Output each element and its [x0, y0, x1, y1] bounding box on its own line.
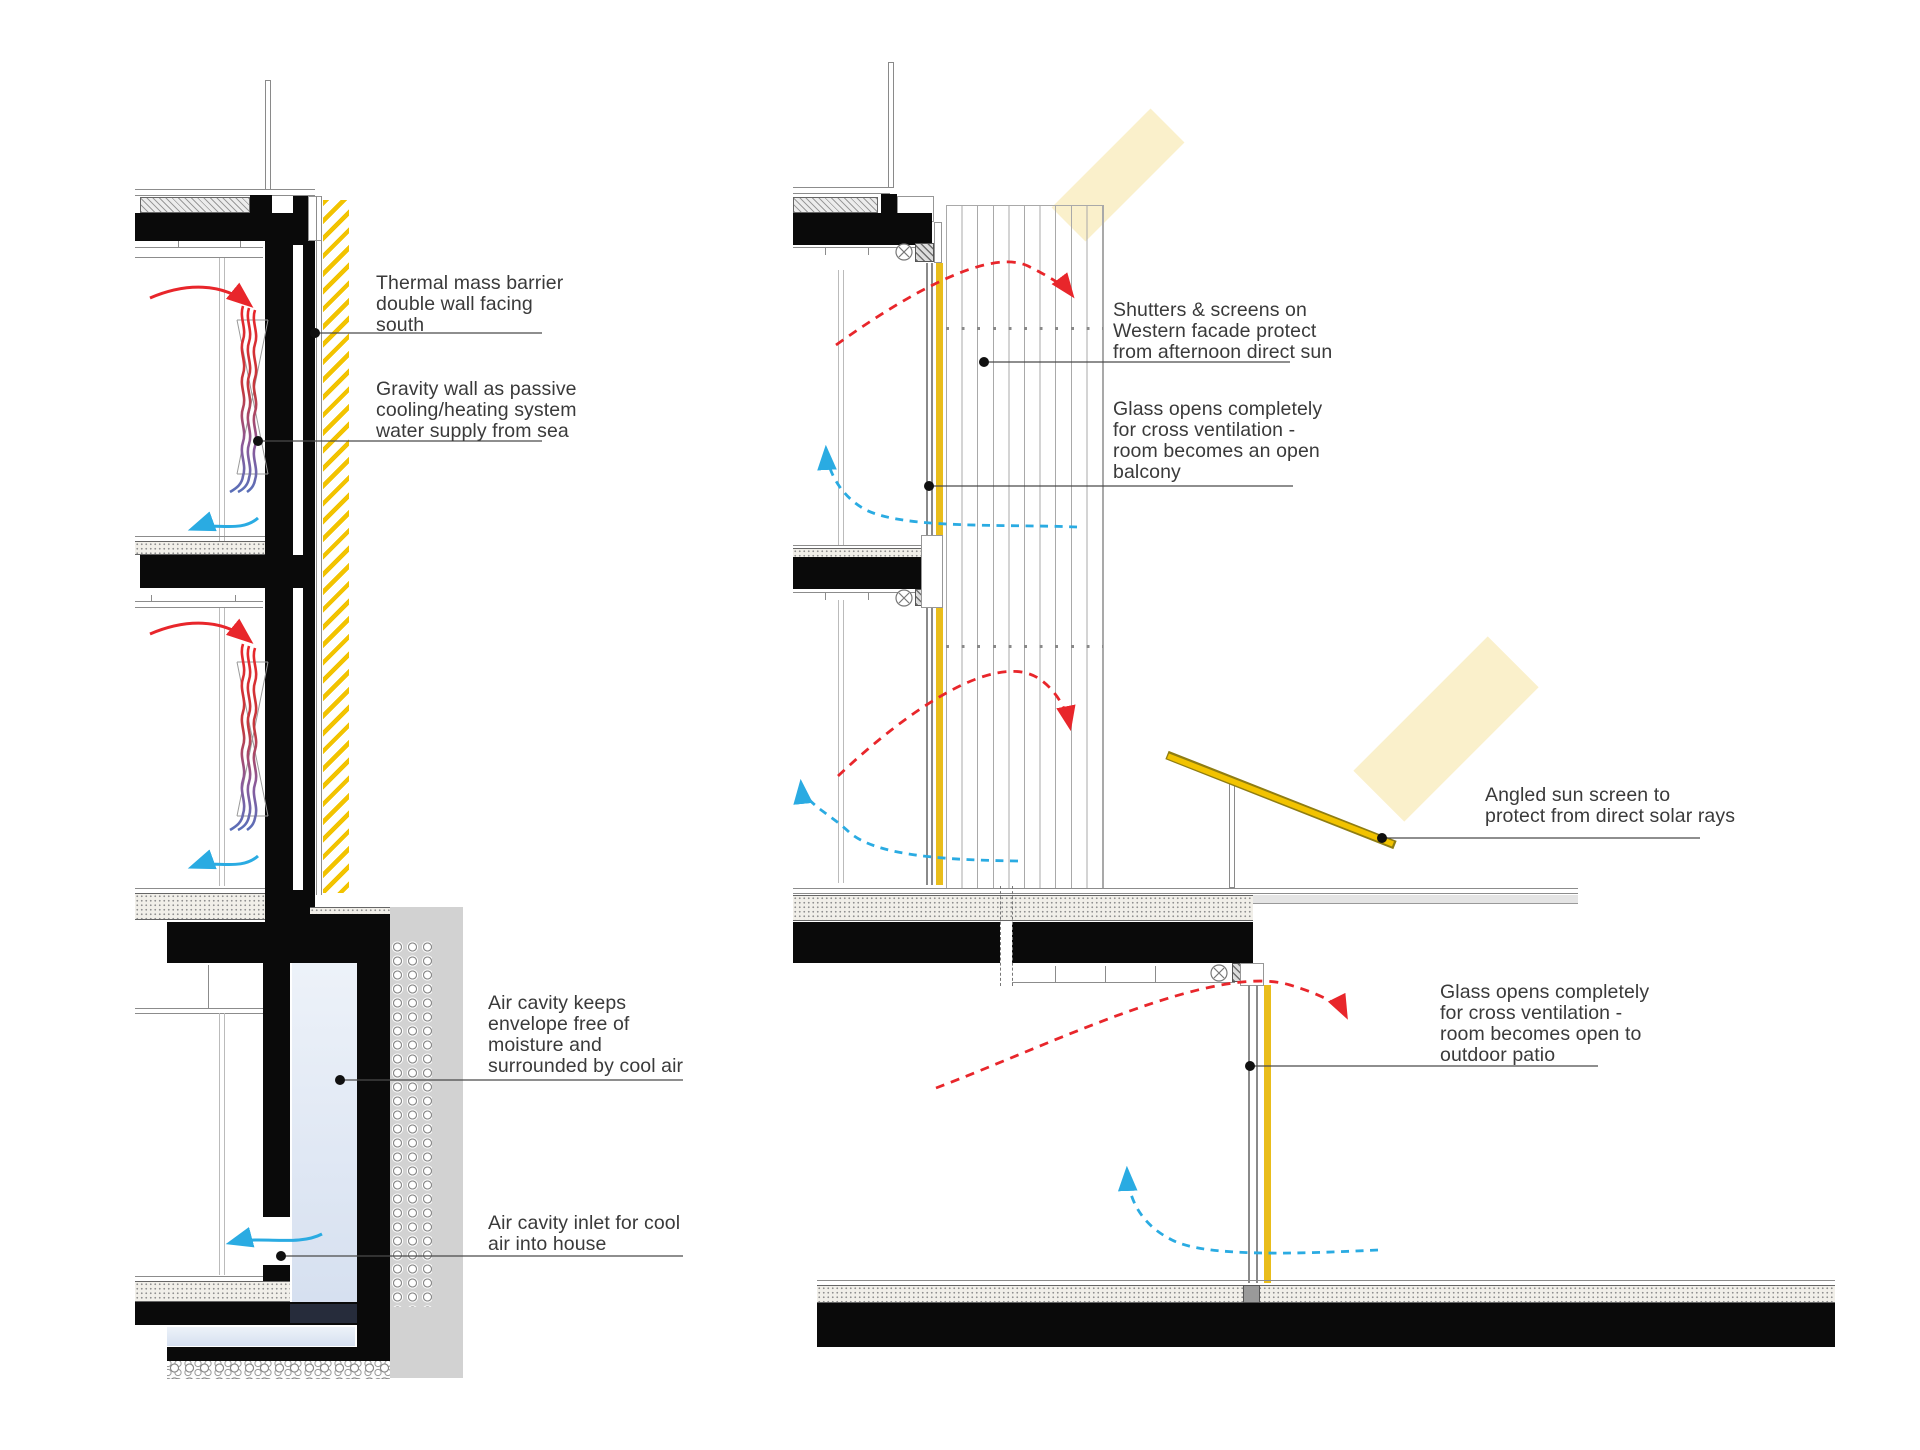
annotation-glass-open-patio: Glass opens completely for cross ventila… [1440, 982, 1649, 1066]
angled-sun-screen-bar [1167, 755, 1395, 845]
annotation-thermal-mass: Thermal mass barrier double wall facing … [376, 273, 563, 336]
annotation-gravity-wall: Gravity wall as passive cooling/heating … [376, 379, 577, 442]
warm-air-arrow [150, 287, 250, 641]
annotation-air-cavity-inlet: Air cavity inlet for cool air into house [488, 1213, 680, 1255]
leader-line [258, 333, 1700, 1256]
warm-air-out-arrow [836, 262, 1346, 1088]
architectural-section-diagram: Thermal mass barrier double wall facing … [0, 0, 1920, 1450]
cool-air-arrow [192, 518, 322, 1243]
annotation-shutters-screens: Shutters & screens on Western facade pro… [1113, 300, 1332, 363]
diagram-overlay [0, 0, 1920, 1450]
annotation-air-cavity: Air cavity keeps envelope free of moistu… [488, 993, 683, 1077]
annotation-glass-open-balcony: Glass opens completely for cross ventila… [1113, 399, 1322, 483]
annotation-angled-sun-screen: Angled sun screen to protect from direct… [1485, 785, 1735, 827]
fan-coil-symbol [237, 320, 268, 816]
cool-air-in-arrow [801, 449, 1378, 1253]
